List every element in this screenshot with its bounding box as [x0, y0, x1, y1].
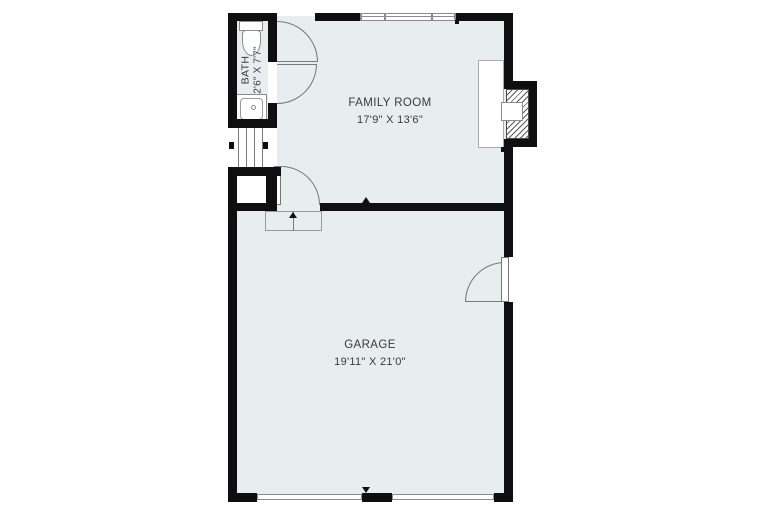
divider-wall-marker	[362, 197, 370, 203]
window-mullion	[431, 13, 433, 21]
garage-door-left-panel	[257, 494, 362, 500]
family-room-dims: 17'9" X 13'6"	[310, 114, 470, 127]
front-door-leaf-line	[277, 61, 318, 62]
garage-entry-door-leaf-line	[465, 301, 505, 302]
exterior-wall-right-b	[504, 143, 513, 257]
stair-tread-line	[246, 128, 247, 167]
sink-drain	[251, 105, 256, 110]
stair-marker-left	[229, 142, 234, 149]
triple-window-symbol	[361, 13, 456, 21]
family-room-label: FAMILY ROOM	[310, 97, 470, 110]
bath-label: BATH	[240, 46, 252, 94]
garage-door-right-panel	[392, 494, 494, 500]
fireplace-bump-right-wall	[529, 81, 537, 147]
fireplace-firebox	[501, 102, 523, 121]
garage-entry-door-leaf	[501, 257, 509, 302]
exterior-wall-left-b	[228, 167, 237, 502]
stair-tread-line	[254, 128, 255, 167]
window-mullion	[384, 13, 386, 21]
garage-door-marker	[362, 487, 370, 493]
garage-label-group: GARAGE 19'11" X 21'0"	[290, 339, 450, 369]
divider-wall-right	[320, 203, 513, 211]
garage-label: GARAGE	[290, 339, 450, 352]
window-corner-mark	[455, 20, 459, 24]
bath-bottom-wall	[228, 119, 277, 128]
garage-dims: 19'11" X 21'0"	[290, 356, 450, 369]
bath-room-label-group: BATH 2'6" X 7'7"	[240, 46, 265, 94]
exterior-wall-bottom-left	[228, 493, 257, 502]
exterior-wall-left-a	[228, 13, 237, 128]
exterior-wall-bottom-right	[494, 493, 513, 502]
step-direction-arrow	[289, 212, 297, 218]
floor-plan-canvas: BATH 2'6" X 7'7" FAMILY ROOM 17'9" X 13'…	[0, 0, 768, 524]
family-room-label-group: FAMILY ROOM 17'9" X 13'6"	[310, 97, 470, 127]
exterior-wall-bottom-pier	[362, 493, 392, 502]
window-end-cap	[360, 13, 362, 21]
exterior-wall-top-b	[315, 13, 361, 21]
bath-dims: 2'6" X 7'7"	[253, 46, 265, 94]
exterior-wall-right-a	[504, 13, 513, 85]
bath-right-wall-upper	[268, 13, 277, 62]
exterior-wall-right-c	[504, 302, 513, 502]
stair-marker-right	[263, 142, 268, 149]
divider-wall-left	[228, 203, 277, 211]
window-center-line	[361, 16, 456, 17]
stairs-symbol	[238, 128, 239, 167]
